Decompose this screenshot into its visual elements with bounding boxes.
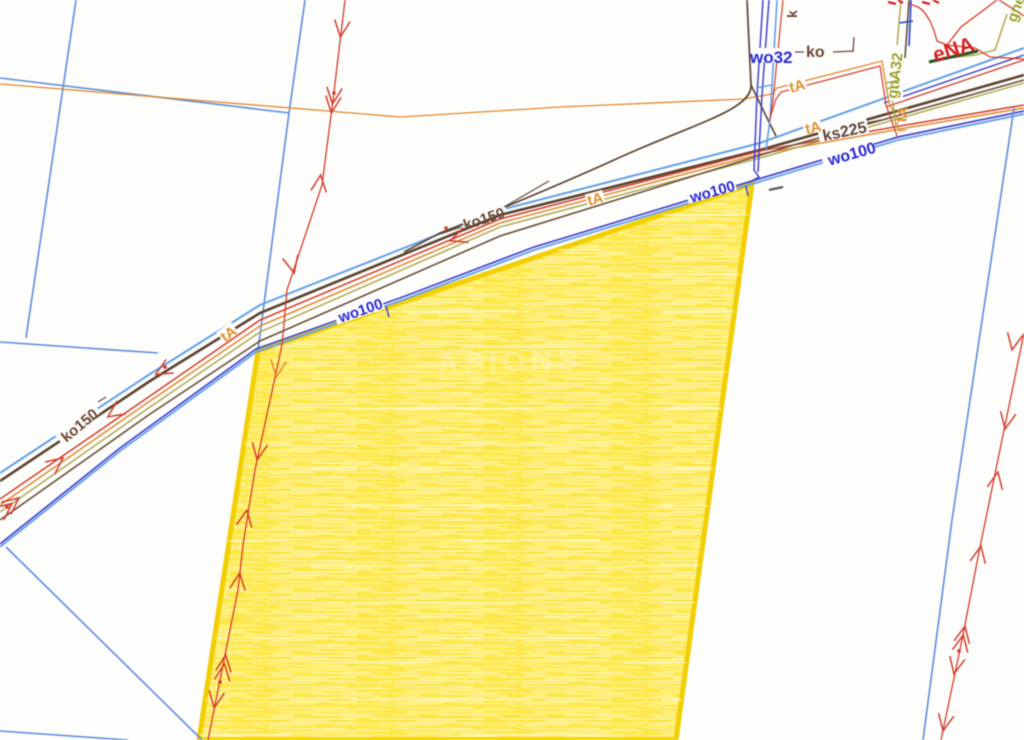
svg-text:k: k [784,10,800,18]
svg-text:ko: ko [806,44,825,61]
svg-text:tA: tA [893,105,913,124]
svg-text:wo32: wo32 [749,48,793,67]
svg-text:ASIONS: ASIONS [437,343,583,381]
